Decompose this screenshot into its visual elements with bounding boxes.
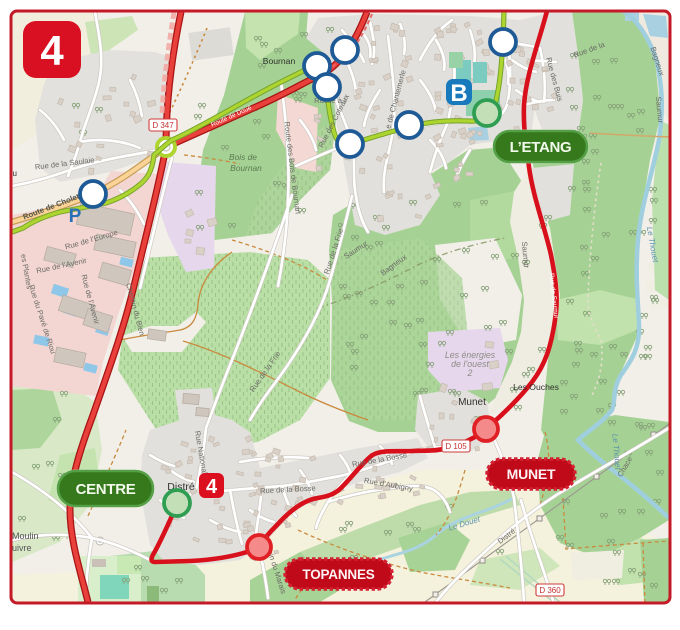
svg-text:Moulin: Moulin	[12, 531, 39, 541]
svg-text:P: P	[69, 206, 82, 227]
svg-text:Bournan: Bournan	[263, 56, 296, 66]
svg-text:D 105: D 105	[445, 442, 467, 451]
svg-text:Bournan: Bournan	[230, 163, 262, 173]
svg-text:Munet: Munet	[458, 397, 486, 408]
svg-text:uivre: uivre	[12, 543, 32, 553]
svg-text:4: 4	[40, 27, 64, 74]
svg-text:4: 4	[206, 476, 218, 498]
svg-text:D 360: D 360	[539, 586, 561, 595]
svg-text:Les Ouches: Les Ouches	[513, 382, 559, 392]
svg-text:2: 2	[467, 368, 473, 378]
svg-text:Bois de: Bois de	[229, 152, 257, 162]
svg-text:TOPANNES: TOPANNES	[302, 567, 374, 582]
svg-text:CENTRE: CENTRE	[76, 481, 136, 498]
svg-text:MUNET: MUNET	[507, 466, 556, 482]
svg-text:D 347: D 347	[152, 121, 174, 130]
svg-text:L’ETANG: L’ETANG	[510, 139, 572, 156]
svg-text:B: B	[450, 80, 467, 107]
